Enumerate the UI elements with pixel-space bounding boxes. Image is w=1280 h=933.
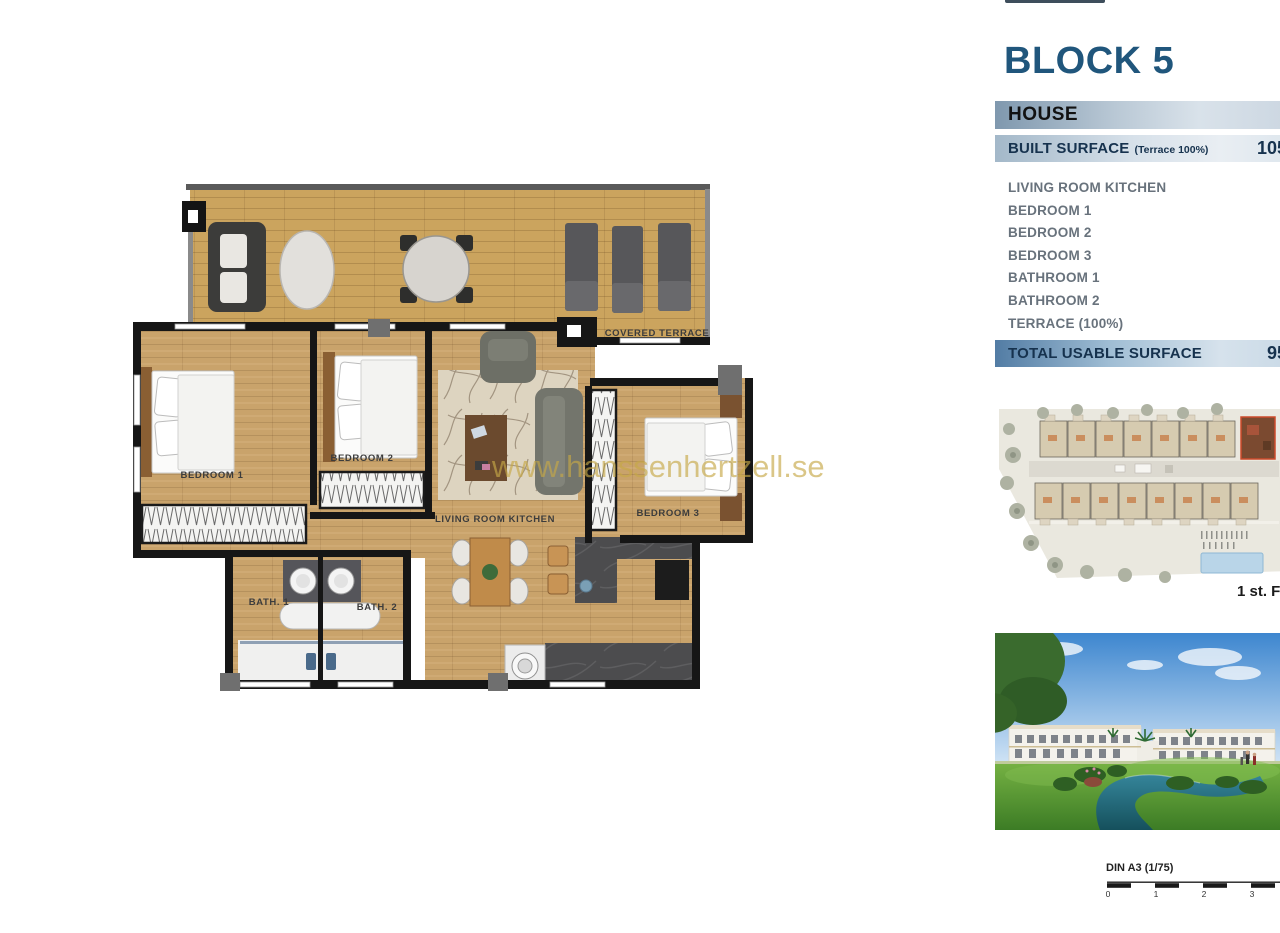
- info-panel: BLOCK 5 HOUSE BUILT SURFACE (Terrace 100…: [995, 0, 1280, 933]
- bedroom-1-label: BEDROOM 1: [181, 470, 244, 481]
- washing-machine: [518, 659, 532, 673]
- scale-tick: 1: [1154, 889, 1159, 899]
- site-plan: 1 st. Fl: [995, 395, 1280, 607]
- total-usable-label: TOTAL USABLE SURFACE: [995, 345, 1202, 362]
- built-surface-value: 105: [1257, 138, 1280, 159]
- scale-bar-label: DIN A3 (1/75): [1106, 862, 1280, 874]
- house-header-label: HOUSE: [995, 104, 1078, 126]
- bath-2-label: BATH. 2: [357, 602, 397, 613]
- flower-bush: [1084, 777, 1102, 787]
- room-list-item: BEDROOM 1: [1008, 200, 1166, 223]
- room-list-item: BEDROOM 3: [1008, 245, 1166, 268]
- stove: [655, 560, 689, 600]
- room-list: LIVING ROOM KITCHEN BEDROOM 1 BEDROOM 2 …: [1008, 177, 1166, 335]
- built-surface-row: BUILT SURFACE (Terrace 100%) 105: [995, 135, 1280, 162]
- highlighted-unit: [1241, 417, 1275, 459]
- site-road: [1029, 461, 1279, 477]
- bedroom-2-furniture: [320, 352, 424, 508]
- terrace-dining-table: [400, 235, 473, 303]
- living-room-kitchen-label: LIVING ROOM KITCHEN: [435, 514, 555, 525]
- room-list-item: BATHROOM 2: [1008, 290, 1166, 313]
- coffee-table: [465, 415, 507, 481]
- room-list-item: TERRACE (100%): [1008, 313, 1166, 336]
- property-photo: [995, 633, 1280, 830]
- top-strip-decor: [1005, 0, 1105, 3]
- site-plan-caption: 1 st. Fl: [1237, 583, 1280, 600]
- built-surface-label: BUILT SURFACE: [995, 140, 1130, 157]
- covered-terrace-area: COVERED TERRACE: [182, 184, 710, 345]
- sun-loungers: [565, 223, 691, 313]
- house-header-bar: HOUSE: [995, 101, 1280, 129]
- terrace-oval-table: [280, 231, 334, 309]
- total-usable-row: TOTAL USABLE SURFACE 95: [995, 340, 1280, 367]
- wardrobe: [320, 472, 424, 508]
- scale-tick: 3: [1250, 889, 1255, 899]
- nightstand: [720, 493, 742, 521]
- property-photo-drawing: [995, 633, 1280, 830]
- scale-bar-ticks: 0 1 2 3: [1106, 889, 1255, 899]
- block-title: BLOCK 5: [1004, 40, 1174, 83]
- bar-stool: [548, 574, 568, 594]
- kitchen-sink: [580, 580, 592, 592]
- bath-1-label: BATH. 1: [249, 597, 290, 608]
- bedroom-3-label: BEDROOM 3: [637, 508, 700, 519]
- wardrobe: [142, 505, 306, 543]
- built-surface-note: (Terrace 100%): [1135, 141, 1209, 156]
- room-list-item: BATHROOM 1: [1008, 267, 1166, 290]
- site-plan-drawing: [995, 395, 1280, 585]
- scale-tick: 0: [1106, 889, 1111, 899]
- bedroom-2-label: BEDROOM 2: [331, 453, 394, 464]
- terrace-top-wall: [186, 184, 710, 190]
- total-usable-value: 95: [1267, 343, 1280, 364]
- room-list-item: BEDROOM 2: [1008, 222, 1166, 245]
- scale-bar-drawing: 0 1 2 3: [1105, 875, 1280, 901]
- foreground-tree: [995, 633, 1067, 733]
- scale-tick: 2: [1202, 889, 1207, 899]
- wardrobe: [590, 390, 616, 530]
- bar-stool: [548, 546, 568, 566]
- scale-bar: DIN A3 (1/75) 0 1 2 3: [1105, 862, 1280, 908]
- site-pool: [1201, 553, 1263, 573]
- floor-plan: COVERED TERRACE: [120, 175, 770, 710]
- room-list-item: LIVING ROOM KITCHEN: [1008, 177, 1166, 200]
- floor-plan-drawing: COVERED TERRACE: [120, 175, 770, 710]
